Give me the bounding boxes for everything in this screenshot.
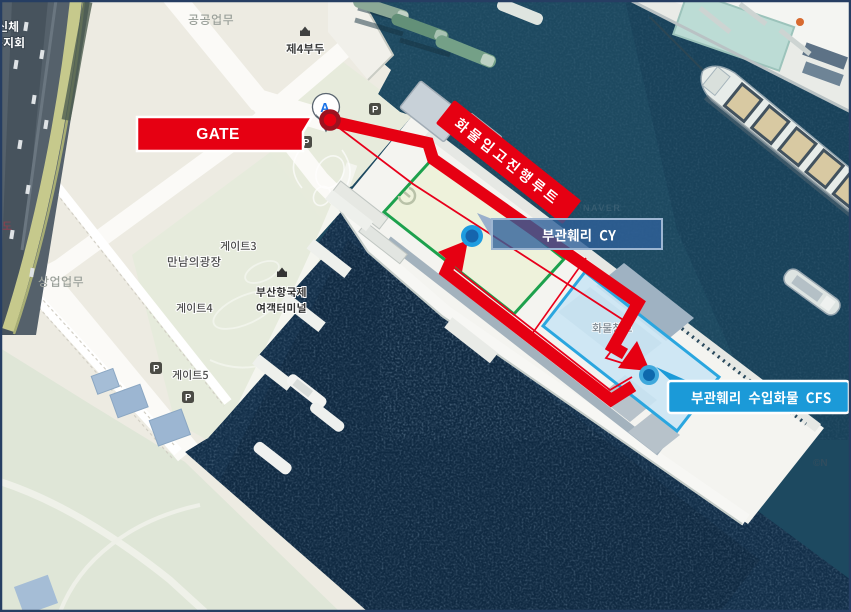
- svg-text:NAVER: NAVER: [583, 203, 621, 213]
- svg-text:P: P: [372, 105, 379, 116]
- svg-text:P: P: [153, 364, 160, 375]
- svg-text:©N: ©N: [813, 458, 828, 469]
- svg-text:P: P: [185, 393, 192, 404]
- svg-text:GATE: GATE: [196, 126, 240, 143]
